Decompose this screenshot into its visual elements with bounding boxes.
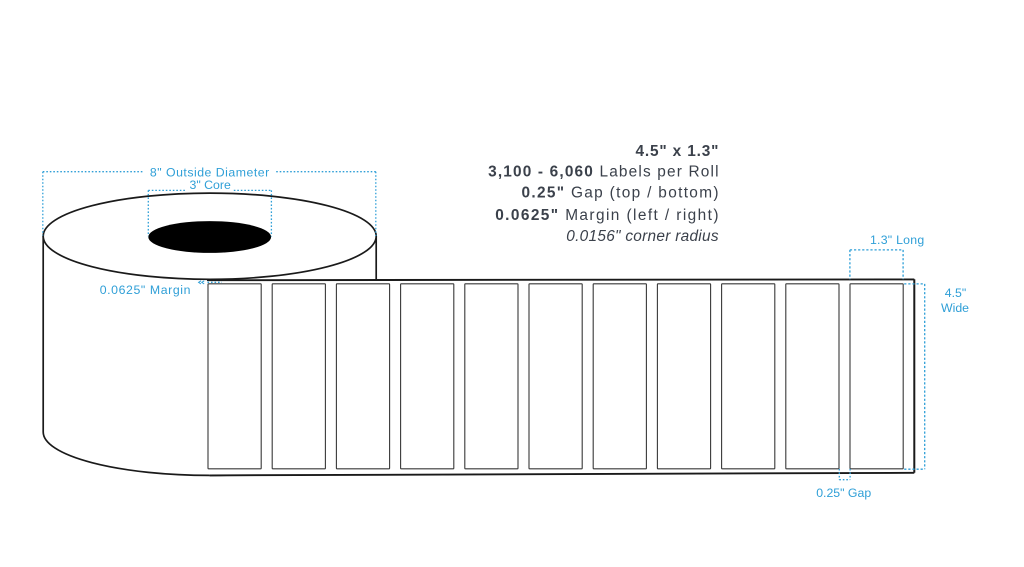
svg-text:4.5": 4.5" — [945, 286, 966, 300]
svg-text:0.0625" Margin: 0.0625" Margin — [100, 283, 191, 297]
svg-text:0.0625" Margin (left / right): 0.0625" Margin (left / right) — [495, 207, 720, 224]
svg-text:Wide: Wide — [941, 301, 969, 315]
svg-text:0.0156" corner radius: 0.0156" corner radius — [566, 228, 719, 245]
svg-text:0.25" Gap: 0.25" Gap — [816, 486, 871, 500]
svg-text:3" Core: 3" Core — [190, 178, 231, 192]
svg-text:1.3" Long: 1.3" Long — [870, 233, 924, 247]
svg-text:3,100 - 6,060 Labels per Roll: 3,100 - 6,060 Labels per Roll — [488, 164, 720, 181]
svg-text:0.25" Gap (top / bottom): 0.25" Gap (top / bottom) — [521, 184, 719, 201]
svg-text:4.5" x 1.3": 4.5" x 1.3" — [635, 143, 719, 160]
